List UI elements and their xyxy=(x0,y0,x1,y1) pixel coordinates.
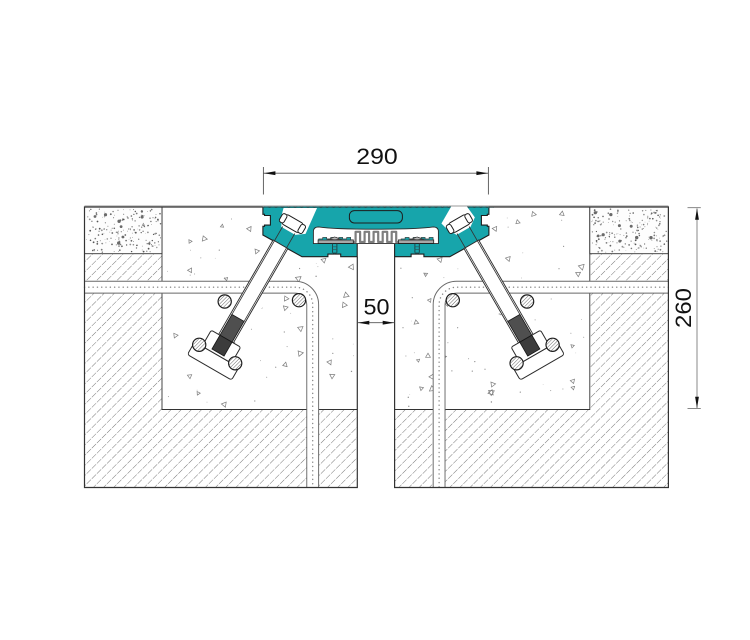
svg-text:290: 290 xyxy=(356,144,398,169)
svg-text:50: 50 xyxy=(364,295,390,320)
svg-text:260: 260 xyxy=(671,288,696,328)
